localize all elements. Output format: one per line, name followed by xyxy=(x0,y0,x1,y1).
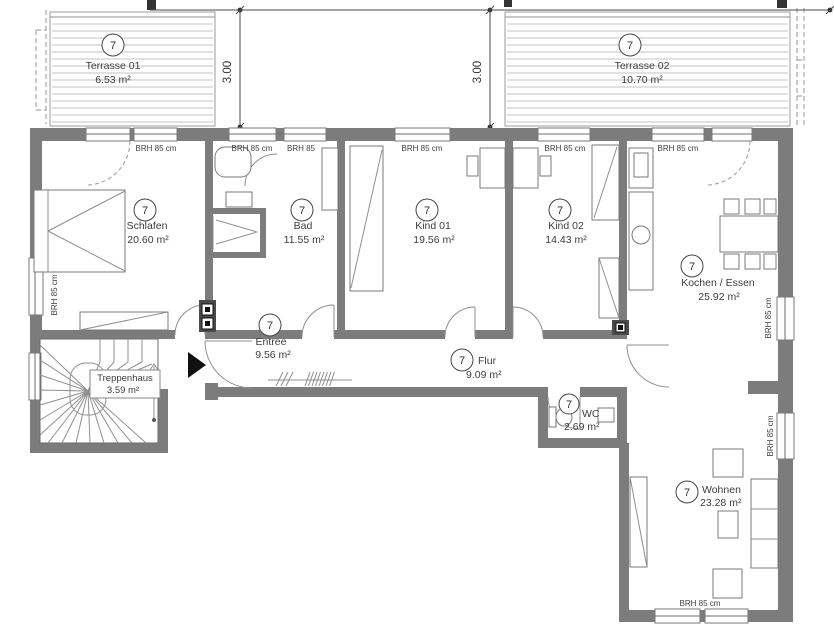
kitchen-oven xyxy=(634,153,648,177)
room-name: Wohnen xyxy=(702,484,741,496)
kind01-kind02-wall xyxy=(505,141,513,330)
armchair-top xyxy=(713,449,743,477)
room-number: 7 xyxy=(566,399,572,411)
chair-kind01 xyxy=(467,156,478,176)
dim-ticks xyxy=(236,6,834,131)
desk-kind02 xyxy=(513,148,538,188)
dimension-markers xyxy=(236,6,834,131)
brh-label: BRH 85 cm xyxy=(232,144,273,153)
bad-utility-walls xyxy=(207,208,266,258)
room-number: 7 xyxy=(267,320,273,332)
room-name: Kochen / Essen xyxy=(681,277,755,289)
dining-chair xyxy=(745,254,760,269)
right-wall xyxy=(778,128,793,622)
wall-stub-top-middle xyxy=(504,0,512,7)
dining-chair xyxy=(764,199,776,214)
brh-label-vertical: BRH 85 cm xyxy=(766,415,775,456)
brh-label-vertical: BRH 85 cm xyxy=(764,297,773,338)
room-name: WC xyxy=(582,408,600,420)
wc-washbasin xyxy=(598,408,614,422)
room-area: 9.56 m² xyxy=(255,349,291,361)
brh-label-short: BRH 85 xyxy=(287,144,316,153)
room-number: 7 xyxy=(299,205,305,217)
room-name: Bad xyxy=(294,220,313,232)
room-label-entree: 7 Entree 9.56 m² xyxy=(255,314,291,361)
room-area-treppenhaus: 3.59 m² xyxy=(107,385,139,396)
room-number: 7 xyxy=(689,261,695,273)
terrace-01-decking xyxy=(52,24,213,122)
shaft-cell-core xyxy=(205,307,210,312)
room-name: Entree xyxy=(256,336,287,348)
room-area: 20.60 m² xyxy=(127,234,169,246)
room-number: 7 xyxy=(142,205,148,217)
door-kind01 xyxy=(445,307,475,337)
room-name: Terrasse 02 xyxy=(615,60,670,72)
room-area: 6.53 m² xyxy=(95,74,131,86)
kind02-kochen-wall xyxy=(619,141,627,339)
room-number: 7 xyxy=(424,205,430,217)
room-area: 14.43 m² xyxy=(545,234,587,246)
staircase-walkline-start xyxy=(152,418,156,422)
room-name: Kind 02 xyxy=(548,220,584,232)
room-area: 2.69 m² xyxy=(564,421,600,433)
terrace-door-swing-schlafen xyxy=(86,141,130,185)
wall-stub-top-right xyxy=(777,0,787,8)
terrace-01-boundary-dashed xyxy=(36,10,46,124)
room-area: 11.55 m² xyxy=(284,234,325,246)
desk-kind01 xyxy=(480,148,505,188)
floor-plan-svg: 3.00 3.00 xyxy=(0,0,834,627)
schlafen-bottom-wall xyxy=(30,330,175,339)
entrance-arrow xyxy=(188,352,206,378)
brh-label-vertical: BRH 85 cm xyxy=(50,274,59,315)
room-area: 25.92 m² xyxy=(698,291,740,303)
room-area: 9.09 m² xyxy=(466,369,502,381)
room-name: Flur xyxy=(478,355,497,367)
utility-shelves xyxy=(213,216,257,250)
floor-plan: 3.00 3.00 xyxy=(0,0,834,627)
shaft-kochen xyxy=(612,320,629,335)
dining-table xyxy=(720,216,778,252)
room-label-flur: 7 Flur 9.09 m² xyxy=(451,349,502,381)
room-area: 19.56 m² xyxy=(413,234,455,246)
room-number: 7 xyxy=(557,205,563,217)
terrace-02-decking xyxy=(507,24,788,122)
room-name: Terrasse 01 xyxy=(86,60,141,72)
room-label-kind02: 7 Kind 02 14.43 m² xyxy=(545,199,587,246)
furniture-wohnen xyxy=(630,449,778,598)
shaft-cell-core xyxy=(205,321,210,326)
door-entrance xyxy=(205,341,252,388)
door-kind02 xyxy=(513,307,543,337)
shaft-entree xyxy=(199,300,216,332)
room-name: Kind 01 xyxy=(415,220,451,232)
staircase: Treppenhaus 3.59 m² xyxy=(40,339,160,443)
room-number: 7 xyxy=(684,487,690,499)
room-name-treppenhaus: Treppenhaus xyxy=(97,373,153,384)
room-area: 23.28 m² xyxy=(700,497,742,509)
wohnen-left-wall xyxy=(619,443,629,610)
room-label-kind01: 7 Kind 01 19.56 m² xyxy=(413,199,455,246)
doormat-hatch xyxy=(268,372,352,386)
room-name: Schlafen xyxy=(127,220,168,232)
door-kochen xyxy=(627,345,669,387)
kitchen-sink xyxy=(632,226,650,244)
terrace-02-boundary-dashed xyxy=(797,8,804,126)
sofa xyxy=(751,479,778,568)
armchair-bottom xyxy=(713,569,742,598)
room-area: 10.70 m² xyxy=(621,74,663,86)
brh-label: BRH 85 cm xyxy=(658,144,699,153)
furniture-kochen xyxy=(629,148,778,290)
toilet-tank xyxy=(549,407,556,427)
dining-chair xyxy=(724,199,739,214)
flur-bottom-wall xyxy=(205,383,548,400)
room-label-wohnen: 7 Wohnen 23.28 m² xyxy=(676,481,742,509)
room-label-terrasse02: 7 Terrasse 02 10.70 m² xyxy=(615,34,670,86)
dimension-value-right: 3.00 xyxy=(472,61,484,83)
brh-label: BRH 85 cm xyxy=(402,144,443,153)
room-label-kochen: 7 Kochen / Essen 25.92 m² xyxy=(681,255,755,303)
brh-label: BRH 85 cm xyxy=(136,144,177,153)
kochen-wohnen-stub xyxy=(748,381,778,394)
dining-chair xyxy=(745,199,760,214)
dining-chair xyxy=(724,254,739,269)
washbasin xyxy=(226,192,252,207)
room-number: 7 xyxy=(459,355,465,367)
dining-chair xyxy=(764,254,776,269)
room-label-schlafen: 7 Schlafen 20.60 m² xyxy=(127,199,170,246)
dimension-value-left: 3.00 xyxy=(222,61,234,83)
brh-label: BRH 85 cm xyxy=(545,144,586,153)
room-number: 7 xyxy=(627,40,633,52)
wall-stub-top-left xyxy=(147,0,156,10)
room-number: 7 xyxy=(110,40,116,52)
terrace-door-swing-kochen xyxy=(706,141,750,185)
chair-kind02 xyxy=(540,156,551,176)
room-label-terrasse01: 7 Terrasse 01 6.53 m² xyxy=(86,34,141,86)
flur-top-wall xyxy=(345,330,619,339)
bath-cabinet xyxy=(322,148,338,210)
shaft-cell-core xyxy=(618,325,623,330)
room-label-bad: 7 Bad 11.55 m² xyxy=(284,199,325,246)
door-bad xyxy=(302,305,334,337)
dimension-lines: 3.00 3.00 xyxy=(150,6,834,131)
brh-label: BRH 85 cm xyxy=(680,599,721,608)
coffee-table xyxy=(718,511,738,538)
